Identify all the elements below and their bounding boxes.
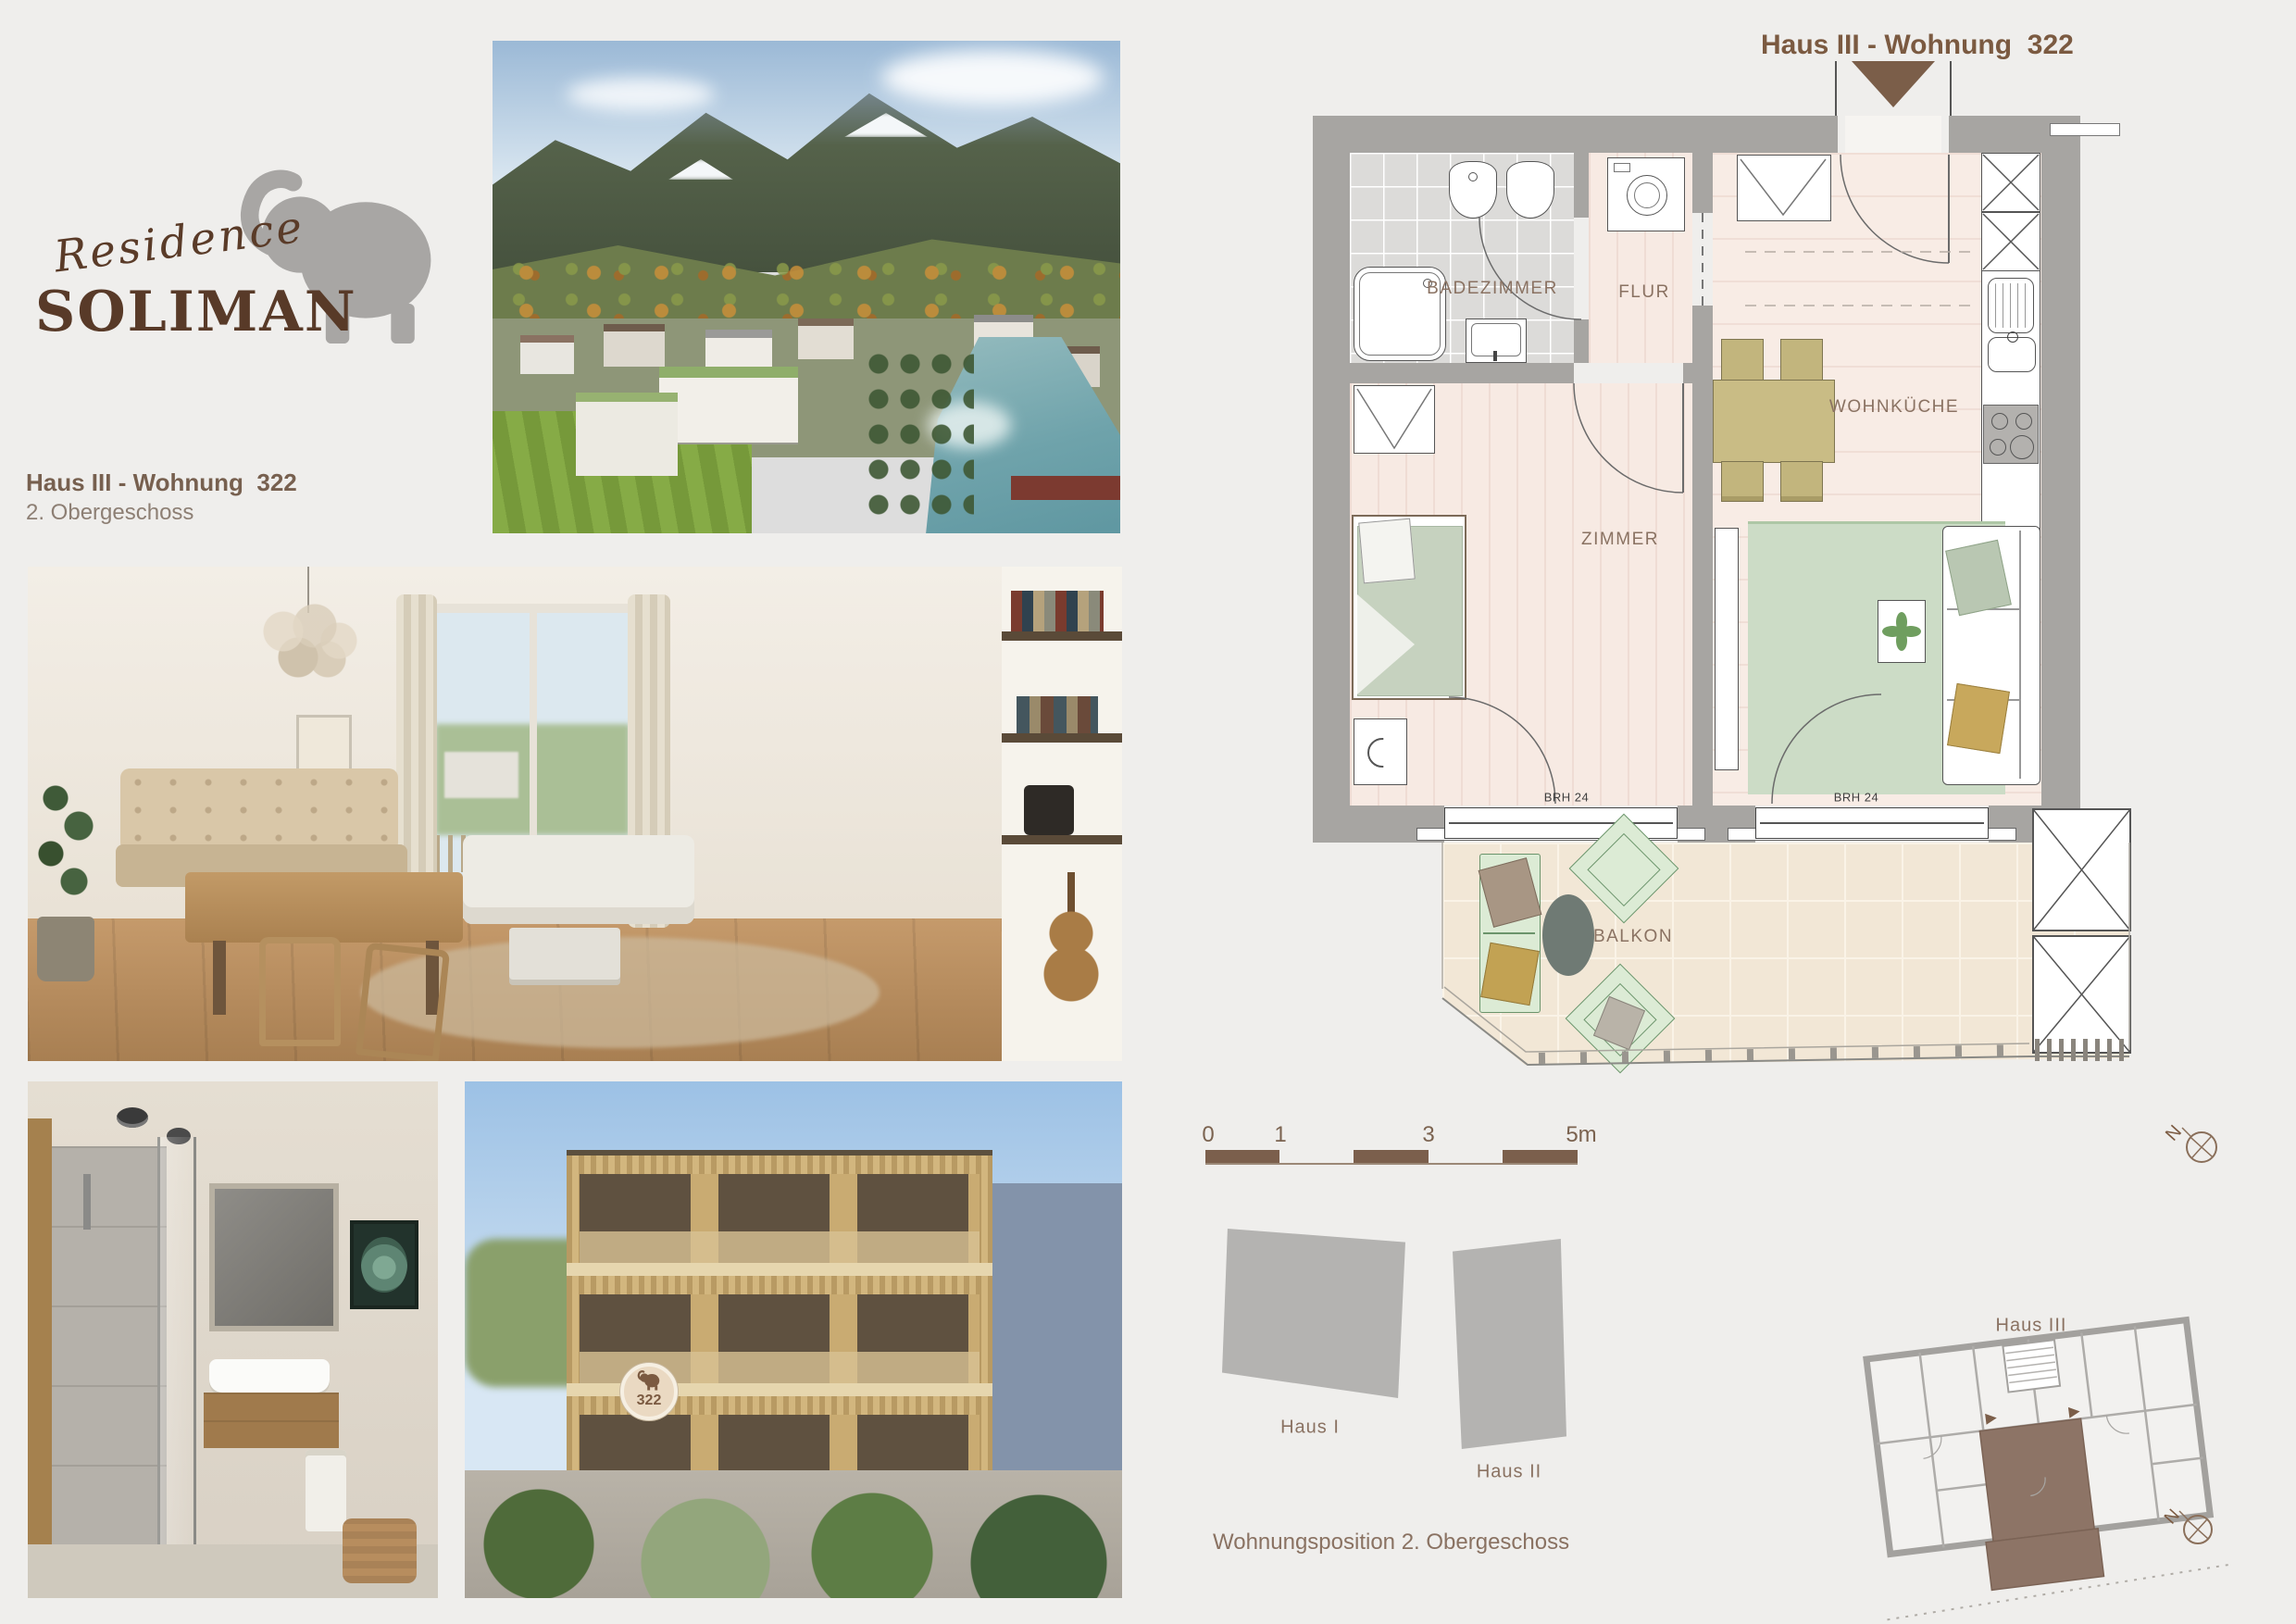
scale-tick-0: 0 bbox=[1202, 1122, 1214, 1148]
residence-building bbox=[659, 367, 798, 443]
lamp bbox=[1367, 738, 1397, 768]
town-house bbox=[520, 335, 574, 374]
logo-name: SOLIMAN bbox=[35, 280, 357, 344]
miniplan-entry-marker bbox=[1985, 1412, 1997, 1424]
miniplan-unit-balcony bbox=[1986, 1529, 2103, 1590]
shelf-unit bbox=[1002, 567, 1122, 1061]
nightstand bbox=[1354, 718, 1407, 785]
tall-cabinet bbox=[1981, 212, 2040, 271]
toilet bbox=[1449, 161, 1497, 219]
table-leg bbox=[213, 941, 226, 1015]
guitar bbox=[1039, 872, 1104, 1011]
laundry-basket bbox=[343, 1518, 417, 1583]
toilet-button bbox=[1468, 172, 1478, 181]
miniplan-entry-marker bbox=[2068, 1405, 2080, 1418]
sofa-back-line bbox=[2019, 531, 2021, 779]
entrance-opening bbox=[1845, 116, 1941, 153]
haus3-miniplan bbox=[1855, 1318, 2231, 1619]
window-view-buildings bbox=[444, 752, 518, 798]
cloud bbox=[881, 50, 1104, 106]
wall-bath-right bbox=[1574, 319, 1589, 363]
dining-table bbox=[185, 872, 463, 943]
window-label-brh: BRH 24 bbox=[1544, 791, 1590, 805]
pillow bbox=[1358, 518, 1416, 584]
compass-icon: N bbox=[2162, 1121, 2223, 1168]
balcony-pillow bbox=[1480, 943, 1540, 1006]
dining-chair bbox=[1780, 339, 1823, 381]
listing-title: Haus III - Wohnung 322 bbox=[26, 468, 297, 497]
kitchen-drainer bbox=[1988, 278, 2034, 333]
miniplan-stairs bbox=[2003, 1340, 2060, 1392]
compass-n-label: N bbox=[2161, 1505, 2184, 1528]
wall-top-left bbox=[1313, 116, 1838, 153]
scale-tick-1: 1 bbox=[1274, 1122, 1286, 1148]
trees bbox=[465, 1470, 1122, 1598]
scale-tick-3: 3 bbox=[1422, 1122, 1434, 1148]
bath-sink bbox=[1466, 319, 1527, 363]
bedroom-wardrobe bbox=[1354, 385, 1435, 454]
pendant-lamp bbox=[257, 604, 359, 683]
speaker bbox=[1024, 785, 1074, 835]
washing-machine bbox=[1607, 157, 1685, 231]
siteplan-haus2-label: Haus II bbox=[1477, 1462, 1541, 1483]
tall-cabinet bbox=[1981, 153, 2040, 212]
sink-tap bbox=[1493, 351, 1497, 361]
shower-head bbox=[83, 1174, 91, 1230]
books bbox=[1017, 696, 1098, 733]
balcony-divider bbox=[2032, 935, 2131, 1054]
brochure-page: Residence SOLIMAN Haus III - Wohnung 322… bbox=[0, 0, 2296, 1624]
plant bbox=[28, 761, 111, 928]
dining-chair bbox=[1721, 339, 1764, 381]
entrance-line bbox=[1835, 61, 1837, 117]
entrance-arrow-icon bbox=[1852, 61, 1935, 107]
shelf-board bbox=[1002, 733, 1122, 743]
mirror bbox=[209, 1183, 339, 1331]
window-label-brh: BRH 24 bbox=[1834, 791, 1879, 805]
wall-bath-right bbox=[1574, 153, 1589, 218]
room-label-balcony: BALKON bbox=[1593, 927, 1673, 947]
miniplan-unit-322 bbox=[1979, 1418, 2094, 1542]
siteplan-caption: Wohnungsposition 2. Obergeschoss bbox=[1213, 1530, 1569, 1555]
stove bbox=[1983, 405, 2039, 464]
window bbox=[1755, 807, 1989, 839]
wall-niche bbox=[2050, 123, 2120, 136]
window-pane-line bbox=[1760, 822, 1984, 824]
listing-subtitle: 2. Obergeschoss bbox=[26, 500, 193, 526]
compass-icon: N bbox=[2161, 1505, 2217, 1549]
residence-building bbox=[576, 393, 678, 476]
wall-left bbox=[1313, 153, 1350, 843]
scale-segment bbox=[1205, 1150, 1279, 1163]
dining-chair bbox=[1780, 461, 1823, 502]
books bbox=[1011, 591, 1104, 631]
succulent bbox=[361, 1237, 407, 1293]
balcony-sofa-seam bbox=[1483, 932, 1535, 934]
bidet bbox=[1506, 161, 1554, 219]
sofa bbox=[463, 835, 694, 924]
chair-seam bbox=[1587, 833, 1660, 906]
burner bbox=[2015, 413, 2032, 430]
vanity-basin bbox=[209, 1359, 330, 1393]
blue-building bbox=[992, 1183, 1122, 1507]
balcony-table bbox=[1542, 894, 1594, 976]
siteplan-haus1-shape bbox=[1222, 1229, 1405, 1398]
entrance-line bbox=[1950, 61, 1952, 117]
wall-right bbox=[2041, 153, 2080, 806]
shelf-board bbox=[1002, 835, 1122, 844]
wood-door-edge bbox=[28, 1118, 52, 1544]
scale-bar bbox=[1205, 1150, 1578, 1165]
coffee-table bbox=[509, 928, 620, 980]
kitchen-tap bbox=[2007, 331, 2018, 343]
towel bbox=[306, 1450, 346, 1531]
badge-elephant-icon bbox=[635, 1370, 663, 1391]
washer-drum-inner bbox=[1634, 182, 1660, 208]
plan-title: Haus III - Wohnung 322 bbox=[1761, 30, 2074, 61]
town-house bbox=[604, 324, 665, 367]
washer-panel bbox=[1614, 163, 1630, 172]
sideboard bbox=[1715, 528, 1739, 770]
chair bbox=[259, 937, 341, 1046]
wall-divider bbox=[1692, 363, 1713, 806]
room-label-bedroom: ZIMMER bbox=[1581, 530, 1659, 550]
cloud bbox=[567, 78, 715, 111]
window-pane-line bbox=[1449, 822, 1673, 824]
room-label-hall: FLUR bbox=[1618, 282, 1670, 303]
entry-wardrobe bbox=[1737, 155, 1831, 221]
wall-divider-stub bbox=[1692, 306, 1713, 363]
siteplan-haus1-label: Haus I bbox=[1280, 1418, 1340, 1439]
vanity-cabinet bbox=[204, 1393, 339, 1448]
ceiling-spot bbox=[117, 1107, 148, 1128]
river-bank-trees bbox=[863, 346, 974, 522]
town-house bbox=[798, 319, 854, 359]
scale-segment bbox=[1503, 1150, 1578, 1163]
badge-number: 322 bbox=[624, 1393, 674, 1409]
siteplan-haus3-label: Haus III bbox=[1996, 1316, 2067, 1337]
scale-tick-5m: 5m bbox=[1566, 1122, 1596, 1148]
compass-n-label: N bbox=[2162, 1121, 2186, 1144]
room-label-bathroom: BADEZIMMER bbox=[1427, 279, 1558, 299]
burner bbox=[1990, 439, 2006, 456]
burner bbox=[2010, 435, 2034, 459]
shower-glass bbox=[157, 1137, 196, 1544]
scale-segment bbox=[1354, 1150, 1429, 1163]
balcony-divider bbox=[2032, 808, 2131, 931]
wall-divider-stub bbox=[1692, 153, 1713, 213]
interior-photo bbox=[28, 567, 1122, 1061]
burner bbox=[1991, 413, 2008, 430]
dining-table bbox=[1713, 380, 1835, 463]
succulent-art bbox=[350, 1220, 418, 1309]
wall-bath-bottom bbox=[1313, 363, 1574, 383]
sofa-cushion bbox=[1947, 683, 2010, 754]
chair bbox=[356, 943, 450, 1061]
bridge bbox=[1011, 476, 1120, 500]
bench-backrest bbox=[120, 768, 398, 852]
slab bbox=[567, 1263, 992, 1276]
siteplan-haus2-shape bbox=[1453, 1239, 1566, 1449]
bathroom-photo bbox=[28, 1081, 438, 1598]
balcony-row bbox=[580, 1174, 980, 1263]
aerial-photo bbox=[493, 41, 1120, 533]
unit-badge: 322 bbox=[620, 1363, 678, 1420]
room-label-kitchen: WOHNKÜCHE bbox=[1829, 397, 1959, 418]
exterior-photo: 322 bbox=[465, 1081, 1122, 1598]
dining-chair bbox=[1721, 461, 1764, 502]
plant-icon bbox=[1881, 611, 1922, 652]
bed bbox=[1352, 515, 1466, 700]
plant-pot bbox=[37, 917, 94, 981]
shelf-board bbox=[1002, 631, 1122, 641]
